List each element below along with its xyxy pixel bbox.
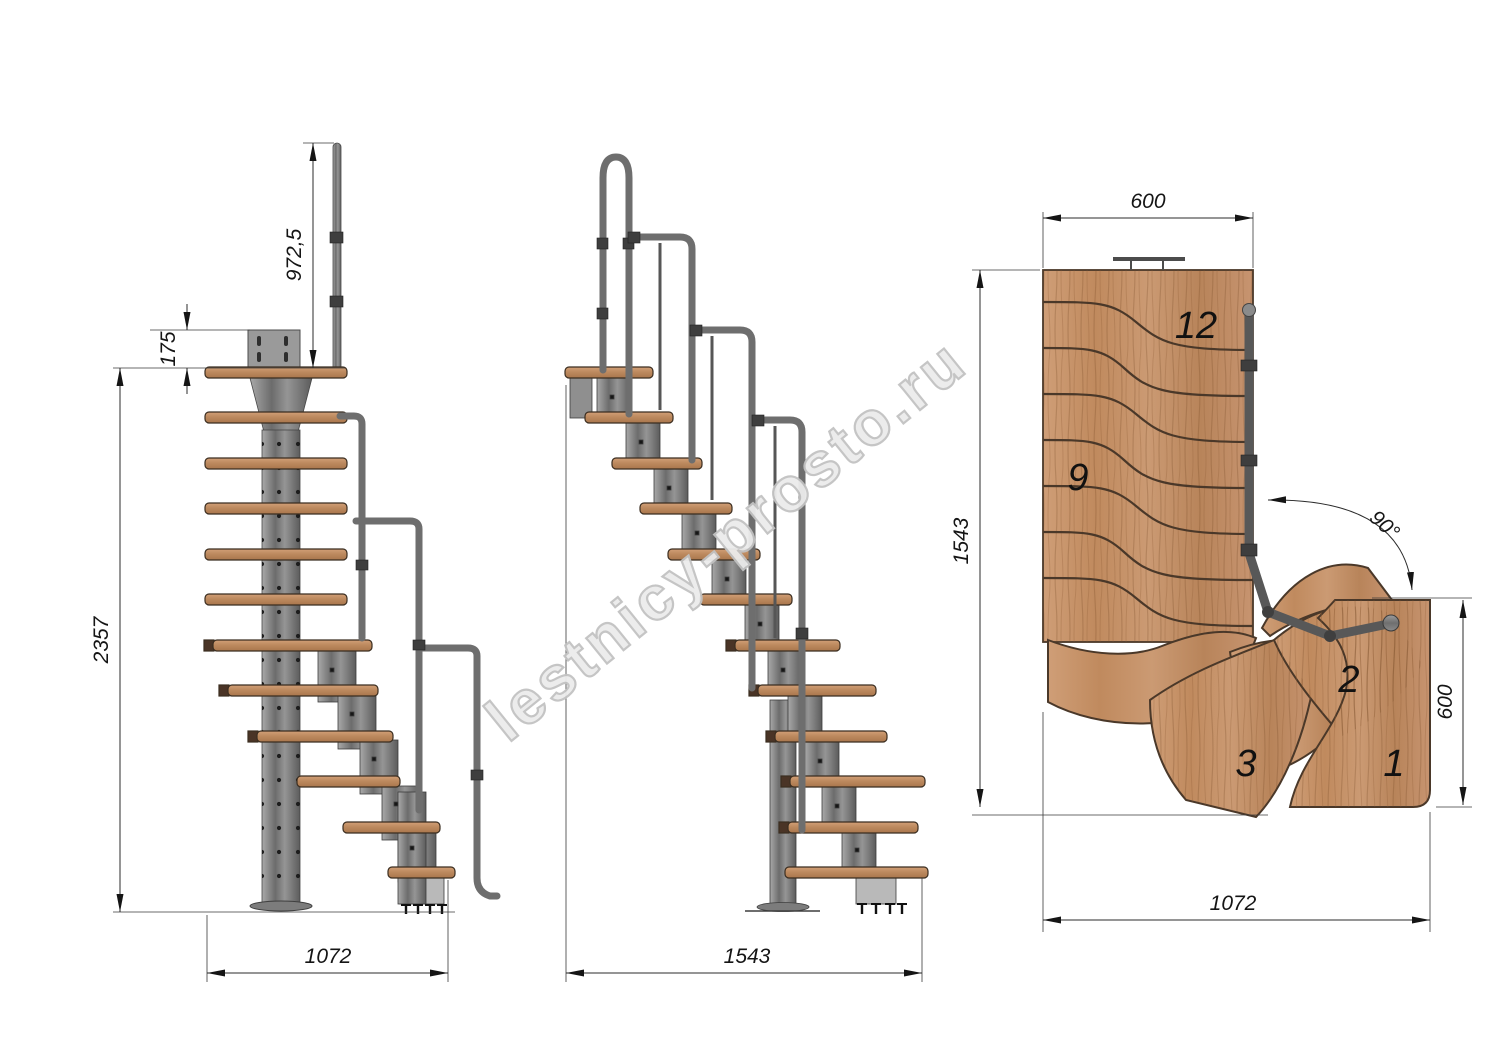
dim-flight-width: 600 <box>1130 190 1165 213</box>
plan-view: 12 9 2 3 1 600 1543 90° 600 1072 <box>950 190 1472 932</box>
dim-rail-height: 972,5 <box>283 228 306 281</box>
dim-top-bracket: 175 <box>157 331 180 366</box>
side-top-mount-plate <box>248 330 300 368</box>
step-number-3: 3 <box>1235 743 1256 785</box>
dim-front-footprint: 1543 <box>724 945 771 968</box>
staircase-drawing: 972,5 175 2357 1072 <box>0 0 1500 1061</box>
rail-joint-icon <box>330 232 343 243</box>
dim-side-footprint: 1072 <box>305 945 352 968</box>
floor-anchor-bolts <box>857 904 907 914</box>
dim-turn-angle: 90° <box>1365 506 1404 544</box>
dim-overall-height: 2357 <box>90 615 113 664</box>
plan-top-bracket <box>1113 259 1185 270</box>
dim-entry-length: 600 <box>1434 684 1457 719</box>
step-number-9: 9 <box>1067 457 1088 499</box>
side-top-rail-post <box>333 143 341 373</box>
side-elevation-view: 972,5 175 2357 1072 <box>90 143 497 982</box>
drawing-svg: 972,5 175 2357 1072 <box>0 0 1500 1061</box>
dim-flight-length: 1543 <box>950 517 973 564</box>
dim-overall-width: 1072 <box>1210 892 1257 915</box>
front-elevation-view: 1543 <box>565 157 928 982</box>
step-number-1: 1 <box>1383 743 1404 785</box>
step-number-12: 12 <box>1175 305 1217 347</box>
step-number-2: 2 <box>1337 659 1359 701</box>
plan-straight-flight <box>1043 270 1253 642</box>
rail-joint-icon <box>330 296 343 307</box>
floor-anchor-bolts <box>401 905 447 914</box>
